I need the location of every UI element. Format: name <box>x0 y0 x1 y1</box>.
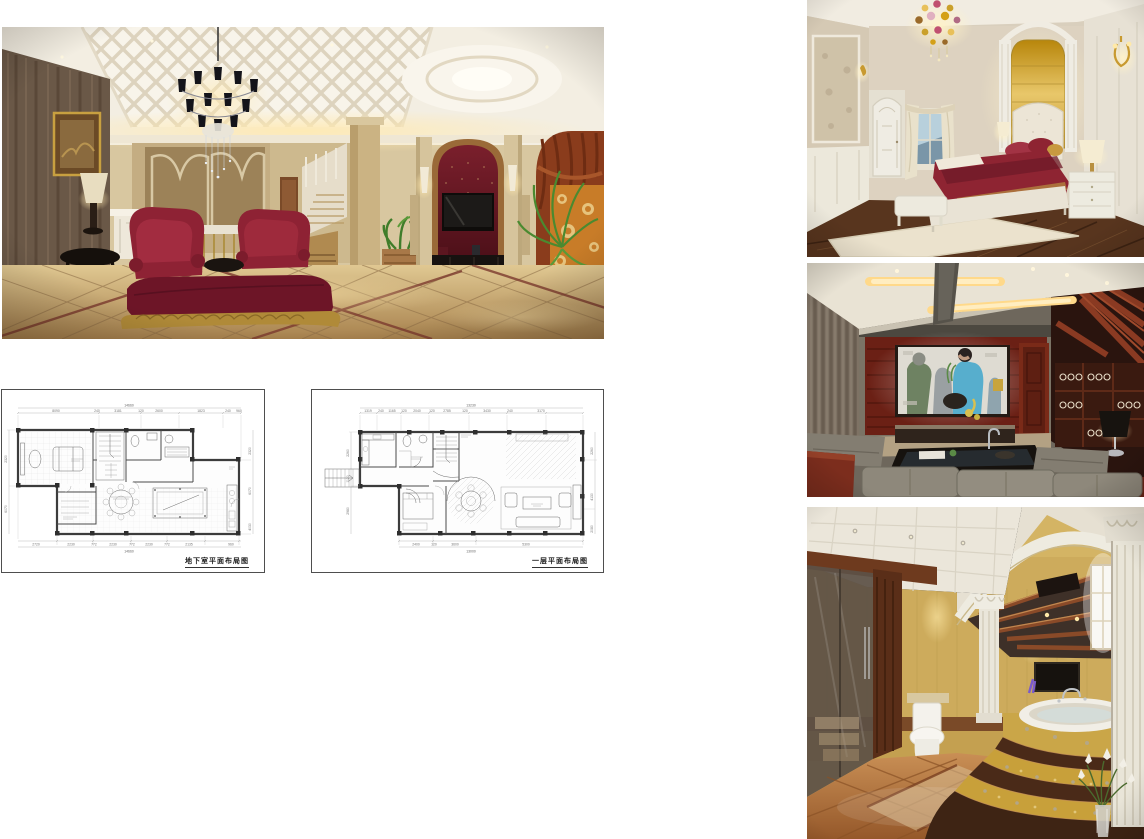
bathroom-rendering[interactable] <box>807 507 1144 839</box>
dim-label: 772 <box>91 542 97 546</box>
dim-label: 2135 <box>185 542 193 546</box>
dim-label: 120 <box>462 409 468 413</box>
dim-label: 2720 <box>32 542 40 546</box>
dim-label: 960 <box>236 409 242 413</box>
first-floor-plan[interactable]: 13230 1319 240 1165 120 2040 120 2785 12… <box>311 389 604 573</box>
dim-label: 8090 <box>52 409 60 413</box>
home-theater-room <box>20 432 91 484</box>
dim-label: 2260 <box>590 447 594 455</box>
dim-label: 120 <box>138 409 144 413</box>
dim-label: 240 <box>225 409 231 413</box>
bathroom-scene <box>807 507 1144 839</box>
dim-label: 2980 <box>346 507 350 515</box>
dim-label: 3181 <box>114 409 122 413</box>
dim-label: 772 <box>129 542 135 546</box>
dim-label: 1823 <box>197 409 205 413</box>
dim-label: 6070 <box>4 505 8 513</box>
dim-label: 2320 <box>4 455 8 463</box>
living-room-rendering[interactable] <box>2 27 604 339</box>
dim-label: 4130 <box>590 493 594 501</box>
dim-total: 13000 <box>466 550 476 554</box>
dim-label: 120 <box>431 542 437 546</box>
dim-label: 2230 <box>145 542 153 546</box>
bedroom-scene <box>807 0 1144 257</box>
dim-label: 240 <box>94 409 100 413</box>
dim-total: 13230 <box>466 404 476 408</box>
dim-total: 14660 <box>124 550 134 554</box>
home-theater-scene <box>807 263 1144 497</box>
dim-label: 1165 <box>388 409 395 413</box>
dim-label: 240 <box>507 409 513 413</box>
dim-label: 6070 <box>248 487 252 495</box>
dim-label: 2080 <box>590 525 594 533</box>
dim-label: 5300 <box>522 542 530 546</box>
dim-label: 2785 <box>443 409 451 413</box>
dim-label: 2600 <box>155 409 163 413</box>
dim-label: 120 <box>429 409 435 413</box>
dim-label: 2400 <box>412 542 420 546</box>
dim-label: 1319 <box>364 409 372 413</box>
bedroom-rendering[interactable] <box>807 0 1144 257</box>
dim-label: 2040 <box>413 409 421 413</box>
living-room-rug-hatch <box>506 435 576 479</box>
dim-label: 4030 <box>248 523 252 531</box>
first-floor-plan-caption: 一层平面布局图 <box>532 556 588 568</box>
dim-label: 2230 <box>109 542 117 546</box>
dim-label: 240 <box>378 409 384 413</box>
basement-plan-drawing: 14660 8090 240 3181 120 2600 1823 240 96… <box>1 389 265 573</box>
living-room-scene <box>2 27 604 339</box>
design-portfolio-canvas: 14660 8090 240 3181 120 2600 1823 240 96… <box>0 0 1144 839</box>
dim-total: 14660 <box>124 404 134 408</box>
dim-label: 1120 <box>346 475 350 482</box>
dim-label: 2230 <box>67 542 75 546</box>
dim-label: 120 <box>401 409 407 413</box>
first-floor-plan-drawing: 13230 1319 240 1165 120 2040 120 2785 12… <box>311 389 604 573</box>
dim-label: 960 <box>228 542 234 546</box>
dim-label: 3430 <box>483 409 491 413</box>
dim-label: 2320 <box>248 447 252 455</box>
dim-label: 772 <box>164 542 170 546</box>
dim-label: 3600 <box>451 542 459 546</box>
basement-floor-plan[interactable]: 14660 8090 240 3181 120 2600 1823 240 96… <box>1 389 265 573</box>
basement-plan-caption: 地下室平面布局图 <box>185 556 249 568</box>
dim-label: 2260 <box>346 449 350 457</box>
home-theater-rendering[interactable] <box>807 263 1144 497</box>
dim-label: 3170 <box>537 409 545 413</box>
